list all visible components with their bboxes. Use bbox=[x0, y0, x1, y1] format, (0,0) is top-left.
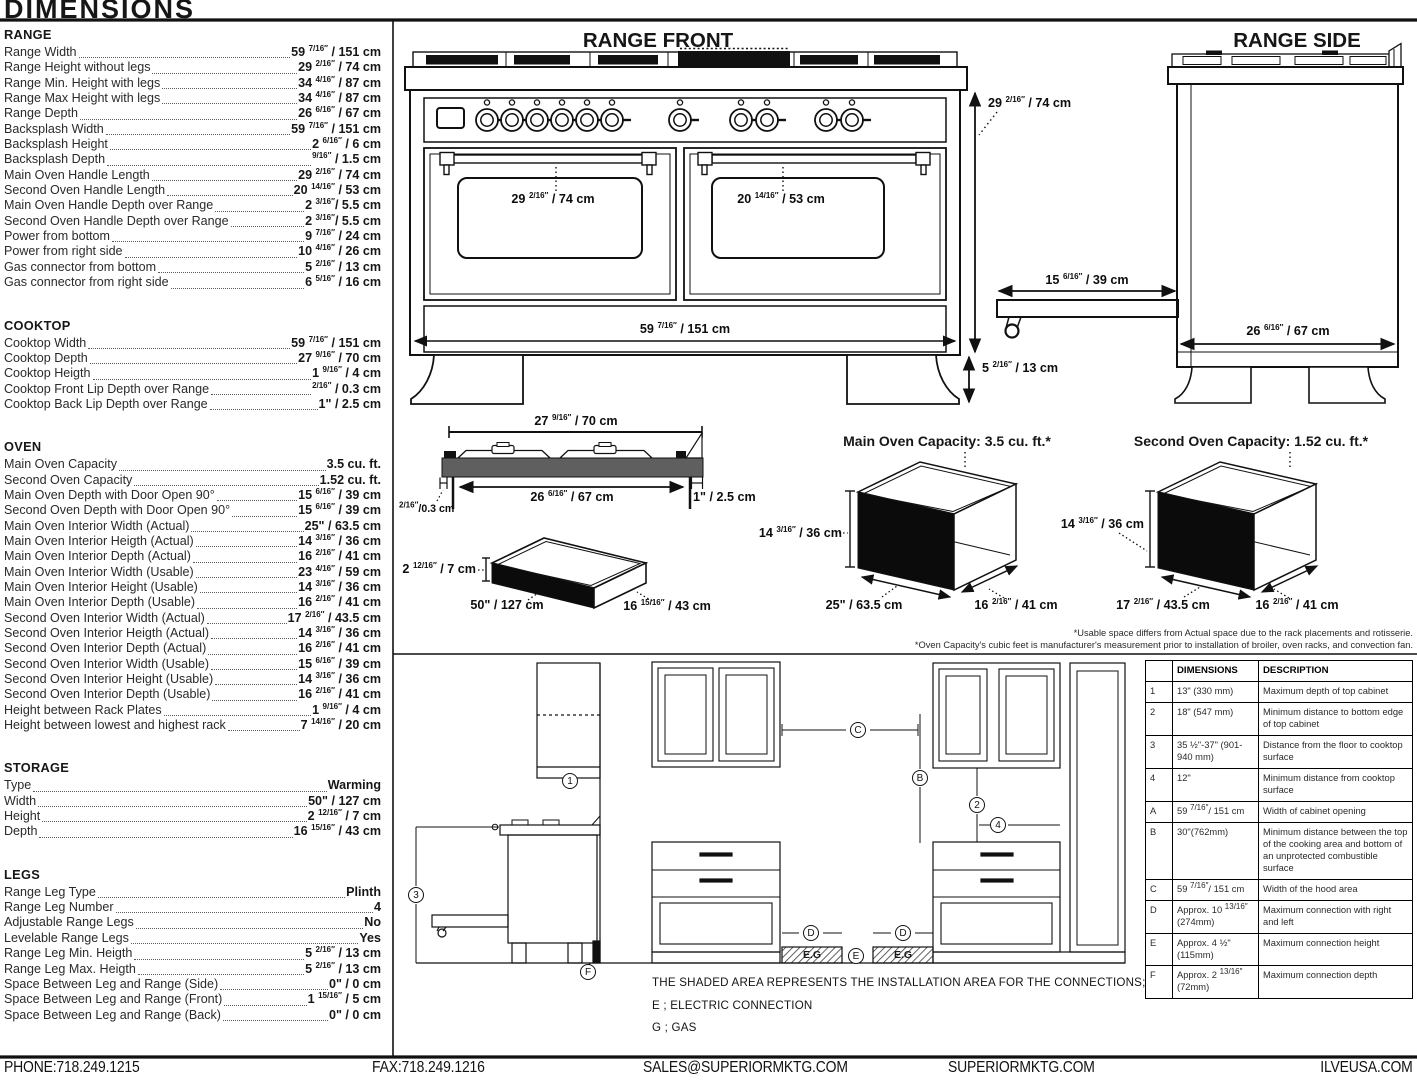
dotted-leader bbox=[207, 623, 287, 624]
dotted-leader bbox=[224, 1005, 306, 1006]
dotted-leader bbox=[200, 592, 297, 593]
spec-value: 27 9/16″ / 70 cm bbox=[298, 351, 381, 366]
spec-value: 50" / 127 cm bbox=[308, 794, 381, 809]
table-cell-description: Distance from the floor to cooktop surfa… bbox=[1259, 736, 1413, 769]
table-cell-description: Width of the hood area bbox=[1259, 879, 1413, 900]
spec-row: Main Oven Interior Heigth (Actual)14 3/1… bbox=[4, 534, 381, 549]
dotted-leader bbox=[162, 103, 297, 104]
front-height-label: 29 2/16″ / 74 cm bbox=[988, 96, 1071, 110]
table-cell-id: 3 bbox=[1146, 736, 1173, 769]
spec-row: Gas connector from bottom5 2/16″ / 13 cm bbox=[4, 260, 381, 275]
spec-value: Yes bbox=[359, 931, 381, 946]
spec-row: Height2 12/16″ / 7 cm bbox=[4, 809, 381, 824]
table-cell-id: 4 bbox=[1146, 769, 1173, 802]
main-oven-height-label: 14 3/16″ / 36 cm bbox=[700, 526, 842, 540]
spec-row: Second Oven Interior Height (Usable)14 3… bbox=[4, 672, 381, 687]
spec-section: COOKTOPCooktop Width59 7/16″ / 151 cmCoo… bbox=[4, 318, 381, 413]
dimensions-table: DIMENSIONSDESCRIPTION113" (330 mm)Maximu… bbox=[1145, 660, 1413, 999]
dotted-leader bbox=[116, 912, 374, 913]
spec-value: 14 3/16″ / 36 cm bbox=[298, 626, 381, 641]
spec-label: Main Oven Interior Heigth (Actual) bbox=[4, 534, 194, 549]
spec-label: Levelable Range Legs bbox=[4, 931, 129, 946]
table-row: DApprox. 10 13/16″ (274mm)Maximum connec… bbox=[1146, 900, 1413, 933]
table-cell-id: E bbox=[1146, 933, 1173, 966]
dimensions-spec-sheet: DIMENSIONS RANGERange Width59 7/16″ / 15… bbox=[0, 0, 1417, 1080]
spec-row: Second Oven Handle Length20 14/16″ / 53 … bbox=[4, 183, 381, 198]
page-title: DIMENSIONS bbox=[4, 0, 195, 25]
main-oven-depth-label: 16 2/16″ / 41 cm bbox=[974, 598, 1057, 612]
spec-row: Range Leg Number4 bbox=[4, 900, 381, 915]
table-row: A59 7/16″/ 151 cmWidth of cabinet openin… bbox=[1146, 801, 1413, 822]
spec-label: Second Oven Interior Height (Usable) bbox=[4, 672, 213, 687]
table-cell-dimension: 59 7/16″/ 151 cm bbox=[1173, 879, 1259, 900]
spec-label: Main Oven Depth with Door Open 90° bbox=[4, 488, 215, 503]
spec-label: Range Width bbox=[4, 45, 77, 60]
spec-value: 4 bbox=[374, 900, 381, 915]
spec-row: Main Oven Capacity3.5 cu. ft. bbox=[4, 457, 381, 472]
dotted-leader bbox=[196, 577, 297, 578]
spec-row: Range Min. Height with legs34 4/16″ / 87… bbox=[4, 76, 381, 91]
table-cell-id: B bbox=[1146, 822, 1173, 879]
main-handle-length-label: 29 2/16″ / 74 cm bbox=[511, 192, 594, 206]
spec-value: 20 14/16″ / 53 cm bbox=[294, 183, 381, 198]
spec-label: Depth bbox=[4, 824, 37, 839]
spec-label: Second Oven Interior Heigth (Actual) bbox=[4, 626, 209, 641]
spec-label: Range Height without legs bbox=[4, 60, 150, 75]
spec-label: Space Between Leg and Range (Front) bbox=[4, 992, 222, 1007]
table-cell-id: 1 bbox=[1146, 682, 1173, 703]
table-cell-description: Maximum connection height bbox=[1259, 933, 1413, 966]
spec-label: Space Between Leg and Range (Back) bbox=[4, 1008, 221, 1023]
spec-row: Backsplash Depth9/16″ / 1.5 cm bbox=[4, 152, 381, 167]
spec-row: Second Oven Interior Heigth (Actual)14 3… bbox=[4, 626, 381, 641]
table-cell-description: Minimum distance from cooktop surface bbox=[1259, 769, 1413, 802]
spec-section: LEGSRange Leg TypePlinthRange Leg Number… bbox=[4, 867, 381, 1023]
table-cell-description: Minimum distance to bottom edge of top c… bbox=[1259, 703, 1413, 736]
second-handle-length-label: 20 14/16″ / 53 cm bbox=[737, 192, 825, 206]
spec-label: Second Oven Handle Depth over Range bbox=[4, 214, 229, 229]
spec-value: 1 15/16″ / 5 cm bbox=[308, 992, 381, 1007]
dotted-leader bbox=[38, 806, 307, 807]
dotted-leader bbox=[33, 791, 327, 792]
spec-value: 10 4/16″ / 26 cm bbox=[298, 244, 381, 259]
spec-row: Range Leg Max. Heigth5 2/16″ / 13 cm bbox=[4, 962, 381, 977]
second-oven-height-label: 14 3/16″ / 36 cm bbox=[1002, 517, 1144, 531]
usable-space-note: *Usable space differs from Actual space … bbox=[1074, 628, 1413, 638]
table-cell-description: Minimum distance between the top of the … bbox=[1259, 822, 1413, 879]
table-row: FApprox. 2 13/16″ (72mm)Maximum connecti… bbox=[1146, 966, 1413, 999]
spec-label: Power from right side bbox=[4, 244, 123, 259]
table-row: 335 ½"-37" (901-940 mm)Distance from the… bbox=[1146, 736, 1413, 769]
spec-value: 2 12/16″ / 7 cm bbox=[308, 809, 381, 824]
spec-label: Backsplash Depth bbox=[4, 152, 105, 167]
spec-row: Range Depth26 6/16″ / 67 cm bbox=[4, 106, 381, 121]
spec-label: Main Oven Interior Width (Actual) bbox=[4, 519, 189, 534]
spec-value: 1 9/16″ / 4 cm bbox=[312, 366, 381, 381]
spec-label: Gas connector from bottom bbox=[4, 260, 156, 275]
dotted-leader bbox=[98, 897, 345, 898]
spec-row: Power from bottom9 7/16″ / 24 cm bbox=[4, 229, 381, 244]
front-lip-label: 2/16″/0.3 cm bbox=[399, 503, 454, 515]
table-header-row: DIMENSIONSDESCRIPTION bbox=[1146, 661, 1413, 682]
spec-label: Second Oven Handle Length bbox=[4, 183, 165, 198]
table-cell-id: F bbox=[1146, 966, 1173, 999]
spec-value: 16 15/16″ / 43 cm bbox=[294, 824, 381, 839]
table-cell-dimension: Approx. 4 ½" (115mm) bbox=[1173, 933, 1259, 966]
table-cell-description: Maximum depth of top cabinet bbox=[1259, 682, 1413, 703]
dotted-leader bbox=[80, 119, 297, 120]
spec-label: Backsplash Height bbox=[4, 137, 108, 152]
spec-row: Second Oven Interior Width (Usable)15 6/… bbox=[4, 657, 381, 672]
spec-value: 16 2/16″ / 41 cm bbox=[298, 687, 381, 702]
table-cell-dimension: 13" (330 mm) bbox=[1173, 682, 1259, 703]
spec-section-header: RANGE bbox=[4, 27, 381, 42]
spec-label: Main Oven Interior Depth (Actual) bbox=[4, 549, 191, 564]
spec-label: Range Leg Min. Heigth bbox=[4, 946, 132, 961]
spec-value: 17 2/16″ / 43.5 cm bbox=[288, 611, 381, 626]
spec-value: No bbox=[364, 915, 381, 930]
spec-value: 15 6/16″ / 39 cm bbox=[298, 657, 381, 672]
circle-marker-3: 3 bbox=[408, 887, 424, 903]
dotted-leader bbox=[211, 669, 297, 670]
main-oven-capacity-title: Main Oven Capacity: 3.5 cu. ft.* bbox=[843, 433, 1051, 449]
spec-label: Power from bottom bbox=[4, 229, 110, 244]
spec-label: Space Between Leg and Range (Side) bbox=[4, 977, 218, 992]
spec-list: RANGERange Width59 7/16″ / 151 cmRange H… bbox=[4, 27, 381, 1023]
table-row: 218" (547 mm)Minimum distance to bottom … bbox=[1146, 703, 1413, 736]
dotted-leader bbox=[223, 1020, 328, 1021]
electric-gas-area-label: E.G bbox=[894, 949, 912, 961]
circle-marker-1: 1 bbox=[562, 773, 578, 789]
dotted-leader bbox=[228, 730, 300, 731]
spec-value: 16 2/16″ / 41 cm bbox=[298, 549, 381, 564]
table-cell-dimension: Approx. 10 13/16″ (274mm) bbox=[1173, 900, 1259, 933]
spec-value: 16 2/16″ / 41 cm bbox=[298, 595, 381, 610]
spec-section-header: STORAGE bbox=[4, 760, 381, 775]
spec-row: TypeWarming bbox=[4, 778, 381, 793]
dotted-leader bbox=[152, 180, 297, 181]
spec-row: Width50" / 127 cm bbox=[4, 794, 381, 809]
spec-label: Second Oven Interior Width (Usable) bbox=[4, 657, 209, 672]
circle-marker-D: D bbox=[803, 925, 819, 941]
dotted-leader bbox=[88, 348, 290, 349]
spec-value: Plinth bbox=[346, 885, 381, 900]
spec-section-header: LEGS bbox=[4, 867, 381, 882]
spec-row: Cooktop Heigth1 9/16″ / 4 cm bbox=[4, 366, 381, 381]
dotted-leader bbox=[231, 226, 304, 227]
spec-value: 1.52 cu. ft. bbox=[320, 473, 381, 488]
circle-marker-E: E bbox=[848, 948, 864, 964]
dotted-leader bbox=[171, 288, 305, 289]
spec-row: Main Oven Interior Depth (Actual)16 2/16… bbox=[4, 549, 381, 564]
second-oven-capacity-title: Second Oven Capacity: 1.52 cu. ft.* bbox=[1134, 433, 1368, 449]
oven-capacity-note: *Oven Capacity's cubic feet is manufactu… bbox=[915, 640, 1413, 650]
table-header-dimensions: DIMENSIONS bbox=[1173, 661, 1259, 682]
spec-row: Cooktop Depth27 9/16″ / 70 cm bbox=[4, 351, 381, 366]
circle-marker-D: D bbox=[895, 925, 911, 941]
spec-row: Gas connector from right side6 5/16″ / 1… bbox=[4, 275, 381, 290]
spec-label: Range Leg Type bbox=[4, 885, 96, 900]
range-front-title: RANGE FRONT bbox=[583, 29, 733, 53]
spec-row: Main Oven Interior Depth (Usable)16 2/16… bbox=[4, 595, 381, 610]
spec-value: 14 3/16″ / 36 cm bbox=[298, 534, 381, 549]
table-row: EApprox. 4 ½" (115mm)Maximum connection … bbox=[1146, 933, 1413, 966]
spec-row: Second Oven Interior Depth (Actual)16 2/… bbox=[4, 641, 381, 656]
spec-value: 2/16″ / 0.3 cm bbox=[312, 382, 381, 397]
spec-row: Second Oven Handle Depth over Range2 3/1… bbox=[4, 214, 381, 229]
table-cell-id: D bbox=[1146, 900, 1173, 933]
spec-row: Cooktop Front Lip Depth over Range2/16″ … bbox=[4, 382, 381, 397]
footer-website-ilve[interactable]: ILVEUSA.COM bbox=[1321, 1059, 1413, 1077]
drawer-height-label: 2 12/16″ / 7 cm bbox=[398, 562, 476, 576]
dotted-leader bbox=[193, 562, 297, 563]
spec-row: Range Max Height with legs34 4/16″ / 87 … bbox=[4, 91, 381, 106]
dotted-leader bbox=[93, 379, 312, 380]
electric-legend: E ; ELECTRIC CONNECTION bbox=[652, 999, 813, 1012]
spec-row: Main Oven Interior Height (Usable)14 3/1… bbox=[4, 580, 381, 595]
cooktop-top-width-label: 27 9/16″ / 70 cm bbox=[534, 414, 617, 428]
spec-row: Range Leg TypePlinth bbox=[4, 885, 381, 900]
table-row: 113" (330 mm)Maximum depth of top cabine… bbox=[1146, 682, 1413, 703]
spec-row: Second Oven Interior Width (Actual)17 2/… bbox=[4, 611, 381, 626]
spec-row: Range Leg Min. Heigth5 2/16″ / 13 cm bbox=[4, 946, 381, 961]
spec-value: Warming bbox=[328, 778, 381, 793]
dotted-leader bbox=[211, 394, 311, 395]
dotted-leader bbox=[152, 73, 297, 74]
spec-value: 26 6/16″ / 67 cm bbox=[298, 106, 381, 121]
table-cell-id: A bbox=[1146, 801, 1173, 822]
spec-value: 7 14/16″ / 20 cm bbox=[301, 718, 381, 733]
spec-section: OVENMain Oven Capacity3.5 cu. ft.Second … bbox=[4, 439, 381, 733]
second-oven-width-label: 17 2/16″ / 43.5 cm bbox=[1116, 598, 1210, 612]
side-depth-label: 26 6/16″ / 67 cm bbox=[1246, 324, 1329, 338]
spec-label: Range Max Height with legs bbox=[4, 91, 160, 106]
leg-height-label: 5 2/16″ / 13 cm bbox=[982, 361, 1058, 375]
dotted-leader bbox=[217, 500, 297, 501]
spec-label: Main Oven Interior Width (Usable) bbox=[4, 565, 194, 580]
spec-row: Range Width59 7/16″ / 151 cm bbox=[4, 45, 381, 60]
spec-row: Height between lowest and highest rack7 … bbox=[4, 718, 381, 733]
spec-value: 29 2/16″ / 74 cm bbox=[298, 60, 381, 75]
table-cell-description: Width of cabinet opening bbox=[1259, 801, 1413, 822]
main-oven-width-label: 25" / 63.5 cm bbox=[826, 598, 903, 612]
footer-fax: FAX:718.249.1216 bbox=[372, 1059, 485, 1077]
dotted-leader bbox=[39, 837, 292, 838]
dotted-leader bbox=[79, 57, 291, 58]
dotted-leader bbox=[106, 134, 290, 135]
spec-label: Range Leg Max. Heigth bbox=[4, 962, 136, 977]
spec-value: 15 6/16″ / 39 cm bbox=[298, 488, 381, 503]
footer-phone: PHONE:718.249.1215 bbox=[4, 1059, 140, 1077]
spec-value: 5 2/16″ / 13 cm bbox=[305, 260, 381, 275]
gas-legend: G ; GAS bbox=[652, 1021, 697, 1034]
spec-label: Second Oven Interior Width (Actual) bbox=[4, 611, 205, 626]
spec-row: Main Oven Handle Length29 2/16″ / 74 cm bbox=[4, 168, 381, 183]
spec-value: 23 4/16″ / 59 cm bbox=[298, 565, 381, 580]
spec-row: Main Oven Interior Width (Usable)23 4/16… bbox=[4, 565, 381, 580]
spec-row: Levelable Range LegsYes bbox=[4, 931, 381, 946]
dotted-leader bbox=[119, 470, 326, 471]
drawer-depth-label: 16 15/16″ / 43 cm bbox=[623, 599, 711, 613]
spec-label: Cooktop Heigth bbox=[4, 366, 91, 381]
dotted-leader bbox=[136, 928, 364, 929]
spec-label: Cooktop Back Lip Depth over Range bbox=[4, 397, 208, 412]
circle-marker-F: F bbox=[580, 964, 596, 980]
circle-marker-4: 4 bbox=[990, 817, 1006, 833]
spec-value: 6 5/16″ / 16 cm bbox=[305, 275, 381, 290]
dotted-leader bbox=[164, 715, 311, 716]
dotted-leader bbox=[125, 257, 298, 258]
footer-email[interactable]: SALES@SUPERIORMKTG.COM bbox=[643, 1059, 848, 1077]
dotted-leader bbox=[134, 485, 318, 486]
spec-value: 14 3/16″ / 36 cm bbox=[298, 672, 381, 687]
table-row: C59 7/16″/ 151 cmWidth of the hood area bbox=[1146, 879, 1413, 900]
spec-row: Power from right side10 4/16″ / 26 cm bbox=[4, 244, 381, 259]
spec-value: 16 2/16″ / 41 cm bbox=[298, 641, 381, 656]
spec-value: 59 7/16″ / 151 cm bbox=[291, 122, 381, 137]
spec-value: 14 3/16″ / 36 cm bbox=[298, 580, 381, 595]
spec-value: 1" / 2.5 cm bbox=[319, 397, 381, 412]
spec-value: 0" / 0 cm bbox=[329, 977, 381, 992]
spec-label: Cooktop Front Lip Depth over Range bbox=[4, 382, 209, 397]
dotted-leader bbox=[210, 409, 318, 410]
spec-label: Range Leg Number bbox=[4, 900, 114, 915]
shelf-depth-label: 15 6/16″ / 39 cm bbox=[1045, 273, 1128, 287]
spec-label: Main Oven Interior Height (Usable) bbox=[4, 580, 198, 595]
table-cell-dimension: 12" bbox=[1173, 769, 1259, 802]
spec-value: 15 6/16″ / 39 cm bbox=[298, 503, 381, 518]
second-oven-depth-label: 16 2/16″ / 41 cm bbox=[1255, 598, 1338, 612]
spec-value: 5 2/16″ / 13 cm bbox=[305, 946, 381, 961]
spec-value: 5 2/16″ / 13 cm bbox=[305, 962, 381, 977]
dotted-leader bbox=[90, 363, 297, 364]
table-cell-id: 2 bbox=[1146, 703, 1173, 736]
footer-website[interactable]: SUPERIORMKTG.COM bbox=[948, 1059, 1095, 1077]
table-cell-dimension: 30"(762mm) bbox=[1173, 822, 1259, 879]
dotted-leader bbox=[215, 684, 297, 685]
spec-section: STORAGETypeWarmingWidth50" / 127 cmHeigh… bbox=[4, 760, 381, 839]
spec-row: Main Oven Interior Width (Actual)25" / 6… bbox=[4, 519, 381, 534]
spec-row: Cooktop Width59 7/16″ / 151 cm bbox=[4, 336, 381, 351]
table-row: 412"Minimum distance from cooktop surfac… bbox=[1146, 769, 1413, 802]
spec-row: Adjustable Range LegsNo bbox=[4, 915, 381, 930]
spec-label: Range Depth bbox=[4, 106, 78, 121]
spec-value: 59 7/16″ / 151 cm bbox=[291, 336, 381, 351]
spec-label: Cooktop Depth bbox=[4, 351, 88, 366]
spec-row: Second Oven Capacity1.52 cu. ft. bbox=[4, 473, 381, 488]
spec-row: Cooktop Back Lip Depth over Range1" / 2.… bbox=[4, 397, 381, 412]
dotted-leader bbox=[232, 516, 297, 517]
spec-value: 0" / 0 cm bbox=[329, 1008, 381, 1023]
spec-value: 2 3/16″/ 5.5 cm bbox=[305, 214, 381, 229]
spec-value: 34 4/16″ / 87 cm bbox=[298, 91, 381, 106]
table-cell-description: Maximum connection with right and left bbox=[1259, 900, 1413, 933]
table-cell-dimension: 59 7/16″/ 151 cm bbox=[1173, 801, 1259, 822]
table-cell-id: C bbox=[1146, 879, 1173, 900]
dotted-leader bbox=[167, 195, 293, 196]
dotted-leader bbox=[196, 546, 297, 547]
circle-marker-2: 2 bbox=[969, 797, 985, 813]
dotted-leader bbox=[110, 149, 311, 150]
drawer-width-label: 50" / 127 cm bbox=[470, 598, 543, 612]
spec-label: Adjustable Range Legs bbox=[4, 915, 134, 930]
spec-label: Height between Rack Plates bbox=[4, 703, 162, 718]
back-lip-label: 1" / 2.5 cm bbox=[693, 490, 756, 504]
spec-label: Gas connector from right side bbox=[4, 275, 169, 290]
table-row: B30"(762mm)Minimum distance between the … bbox=[1146, 822, 1413, 879]
range-side-title: RANGE SIDE bbox=[1233, 29, 1361, 53]
spec-label: Height between lowest and highest rack bbox=[4, 718, 226, 733]
front-width-label: 59 7/16″ / 151 cm bbox=[640, 322, 730, 336]
spec-value: 2 6/16″ / 6 cm bbox=[312, 137, 381, 152]
spec-row: Second Oven Depth with Door Open 90°15 6… bbox=[4, 503, 381, 518]
table-cell-dimension: 18" (547 mm) bbox=[1173, 703, 1259, 736]
spec-value: 3.5 cu. ft. bbox=[327, 457, 381, 472]
spec-label: Width bbox=[4, 794, 36, 809]
spec-row: Space Between Leg and Range (Front)1 15/… bbox=[4, 992, 381, 1007]
spec-label: Second Oven Interior Depth (Usable) bbox=[4, 687, 210, 702]
spec-value: 9 7/16″ / 24 cm bbox=[305, 229, 381, 244]
dotted-leader bbox=[212, 700, 297, 701]
spec-label: Main Oven Capacity bbox=[4, 457, 117, 472]
dotted-leader bbox=[208, 654, 297, 655]
spec-label: Main Oven Interior Depth (Usable) bbox=[4, 595, 195, 610]
dotted-leader bbox=[197, 608, 297, 609]
spec-row: Range Height without legs29 2/16″ / 74 c… bbox=[4, 60, 381, 75]
spec-section: RANGERange Width59 7/16″ / 151 cmRange H… bbox=[4, 27, 381, 291]
table-header-blank bbox=[1146, 661, 1173, 682]
dotted-leader bbox=[134, 959, 304, 960]
spec-row: Depth16 15/16″ / 43 cm bbox=[4, 824, 381, 839]
dotted-leader bbox=[211, 638, 297, 639]
spec-row: Main Oven Handle Depth over Range2 3/16″… bbox=[4, 198, 381, 213]
spec-label: Backsplash Width bbox=[4, 122, 104, 137]
dotted-leader bbox=[138, 974, 304, 975]
dotted-leader bbox=[191, 531, 303, 532]
spec-label: Main Oven Handle Depth over Range bbox=[4, 198, 213, 213]
table-cell-dimension: Approx. 2 13/16″ (72mm) bbox=[1173, 966, 1259, 999]
spec-value: 25" / 63.5 cm bbox=[305, 519, 381, 534]
spec-row: Main Oven Depth with Door Open 90°15 6/1… bbox=[4, 488, 381, 503]
spec-value: 1 9/16″ / 4 cm bbox=[312, 703, 381, 718]
dotted-leader bbox=[162, 88, 297, 89]
dotted-leader bbox=[112, 241, 304, 242]
table-cell-dimension: 35 ½"-37" (901-940 mm) bbox=[1173, 736, 1259, 769]
spec-value: 59 7/16″ / 151 cm bbox=[291, 45, 381, 60]
spec-section-header: COOKTOP bbox=[4, 318, 381, 333]
dotted-leader bbox=[220, 989, 328, 990]
spec-label: Main Oven Handle Length bbox=[4, 168, 150, 183]
spec-label: Second Oven Depth with Door Open 90° bbox=[4, 503, 230, 518]
circle-marker-C: C bbox=[850, 722, 866, 738]
spec-row: Second Oven Interior Depth (Usable)16 2/… bbox=[4, 687, 381, 702]
spec-label: Range Min. Height with legs bbox=[4, 76, 160, 91]
spec-row: Space Between Leg and Range (Side)0" / 0… bbox=[4, 977, 381, 992]
spec-label: Type bbox=[4, 778, 31, 793]
spec-label: Second Oven Interior Depth (Actual) bbox=[4, 641, 206, 656]
spec-label: Second Oven Capacity bbox=[4, 473, 132, 488]
spec-value: 29 2/16″ / 74 cm bbox=[298, 168, 381, 183]
spec-row: Space Between Leg and Range (Back)0" / 0… bbox=[4, 1008, 381, 1023]
spec-label: Cooktop Width bbox=[4, 336, 86, 351]
spec-section-header: OVEN bbox=[4, 439, 381, 454]
spec-value: 2 3/16″/ 5.5 cm bbox=[305, 198, 381, 213]
spec-row: Backsplash Height2 6/16″ / 6 cm bbox=[4, 137, 381, 152]
spec-label: Height bbox=[4, 809, 40, 824]
spec-row: Backsplash Width59 7/16″ / 151 cm bbox=[4, 122, 381, 137]
shaded-area-note: THE SHADED AREA REPRESENTS THE INSTALLAT… bbox=[652, 976, 1146, 989]
dotted-leader bbox=[42, 821, 306, 822]
